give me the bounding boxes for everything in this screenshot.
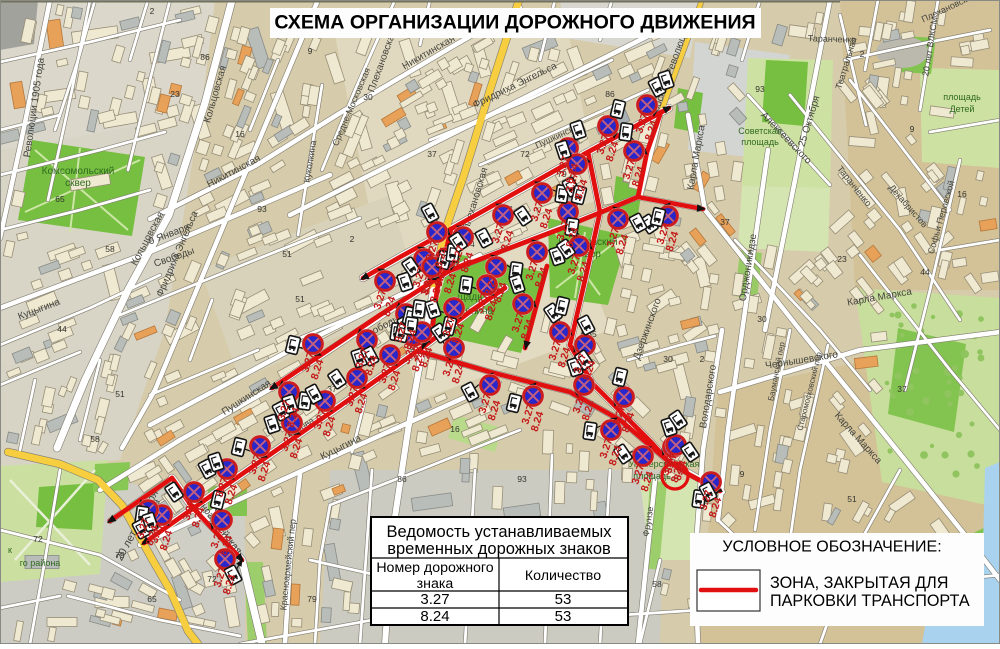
svg-text:30: 30 xyxy=(663,354,673,364)
svg-text:16: 16 xyxy=(957,189,967,199)
svg-text:58: 58 xyxy=(90,434,100,444)
svg-text:сквер: сквер xyxy=(65,178,91,189)
svg-text:86: 86 xyxy=(605,89,615,99)
svg-text:65: 65 xyxy=(55,194,65,204)
svg-text:51: 51 xyxy=(115,389,125,399)
svg-text:72: 72 xyxy=(33,534,43,544)
svg-text:86: 86 xyxy=(397,474,407,484)
svg-text:8.24: 8.24 xyxy=(420,608,449,625)
svg-text:58: 58 xyxy=(105,244,115,254)
svg-text:Ведомость устанавливаемых: Ведомость устанавливаемых xyxy=(387,523,613,541)
svg-text:Комсомольский: Комсомольский xyxy=(42,166,115,177)
svg-text:79: 79 xyxy=(115,550,125,560)
svg-text:Детей: Детей xyxy=(950,104,975,114)
svg-text:УСЛОВНОЕ ОБОЗНАЧЕНИЕ:: УСЛОВНОЕ ОБОЗНАЧЕНИЕ: xyxy=(722,539,941,556)
svg-text:2: 2 xyxy=(150,6,155,16)
svg-text:53: 53 xyxy=(555,608,572,625)
svg-text:2: 2 xyxy=(350,234,355,244)
svg-text:37: 37 xyxy=(897,384,907,394)
svg-text:44: 44 xyxy=(920,267,930,277)
svg-text:30: 30 xyxy=(757,314,767,324)
svg-text:23: 23 xyxy=(170,89,180,99)
svg-text:ЗОНА, ЗАКРЫТАЯ ДЛЯ: ЗОНА, ЗАКРЫТАЯ ДЛЯ xyxy=(770,574,948,592)
svg-text:площадь: площадь xyxy=(943,92,981,102)
svg-text:временных дорожных знаков: временных дорожных знаков xyxy=(387,540,611,558)
svg-text:Количество: Количество xyxy=(525,568,601,584)
svg-text:Советская: Советская xyxy=(738,126,782,136)
svg-text:44: 44 xyxy=(57,324,67,334)
svg-text:51: 51 xyxy=(847,494,857,504)
svg-text:51: 51 xyxy=(295,294,305,304)
svg-text:9: 9 xyxy=(308,46,313,56)
svg-text:37: 37 xyxy=(720,217,730,227)
svg-text:ПАРКОВКИ ТРАНСПОРТА: ПАРКОВКИ ТРАНСПОРТА xyxy=(770,592,970,610)
svg-text:72: 72 xyxy=(520,149,530,159)
svg-text:93: 93 xyxy=(517,474,527,484)
svg-text:93: 93 xyxy=(755,84,765,94)
svg-text:3.27: 3.27 xyxy=(420,591,449,608)
svg-text:СХЕМА ОРГАНИЗАЦИИ ДОРОЖНОГО ДВ: СХЕМА ОРГАНИЗАЦИИ ДОРОЖНОГО ДВИЖЕНИЯ xyxy=(274,12,755,34)
svg-text:86: 86 xyxy=(200,52,210,62)
svg-text:9: 9 xyxy=(910,124,915,134)
svg-text:30: 30 xyxy=(363,92,373,102)
svg-text:51: 51 xyxy=(282,249,292,259)
svg-text:го района: го района xyxy=(20,558,61,568)
svg-text:93: 93 xyxy=(257,204,267,214)
svg-text:79: 79 xyxy=(307,594,317,604)
svg-text:9: 9 xyxy=(740,469,745,479)
svg-text:23: 23 xyxy=(837,254,847,264)
svg-text:2: 2 xyxy=(860,49,865,59)
svg-text:65: 65 xyxy=(147,594,157,604)
svg-text:2: 2 xyxy=(700,354,705,364)
svg-text:Номер дорожного: Номер дорожного xyxy=(376,560,493,576)
svg-text:16: 16 xyxy=(235,129,245,139)
svg-text:к: к xyxy=(8,545,12,555)
svg-text:53: 53 xyxy=(555,591,572,608)
svg-text:Таранченко: Таранченко xyxy=(808,33,857,45)
svg-text:58: 58 xyxy=(652,579,662,589)
svg-text:площадь: площадь xyxy=(741,137,779,147)
svg-text:знака: знака xyxy=(417,576,454,592)
svg-text:16: 16 xyxy=(450,424,460,434)
svg-text:37: 37 xyxy=(427,149,437,159)
